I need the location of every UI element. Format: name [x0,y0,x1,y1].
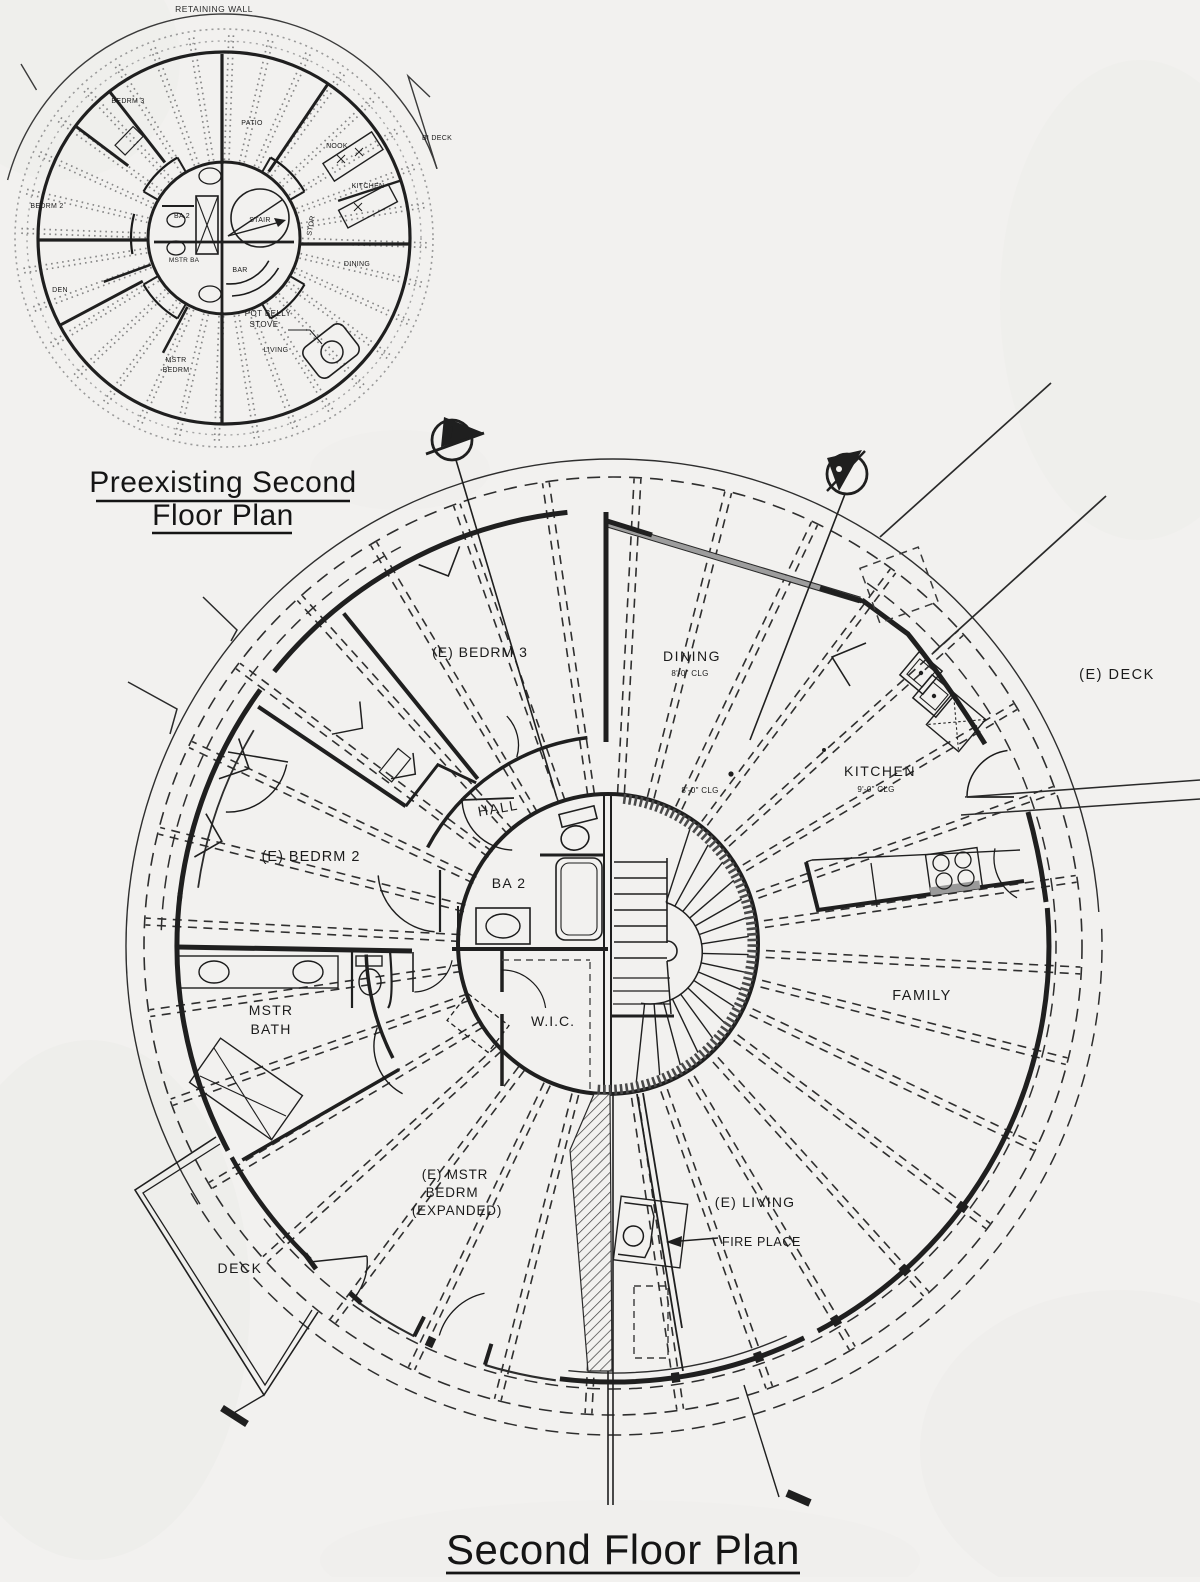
svg-text:PATIO: PATIO [241,120,263,127]
svg-text:FIRE PLACE: FIRE PLACE [722,1235,801,1249]
svg-text:(E) BEDRM 3: (E) BEDRM 3 [432,644,528,660]
svg-text:FAMILY: FAMILY [892,988,952,1004]
svg-text:9'-0" CLG: 9'-0" CLG [857,785,894,794]
svg-text:NOOK: NOOK [326,143,348,150]
svg-text:(E) DECK: (E) DECK [1079,667,1155,683]
svg-text:DINING: DINING [663,648,721,664]
svg-text:Second Floor Plan: Second Floor Plan [446,1526,800,1573]
svg-text:W.I.C.: W.I.C. [531,1013,575,1029]
svg-text:BEDRM 3: BEDRM 3 [111,98,144,105]
svg-text:MSTR BA: MSTR BA [169,257,200,264]
svg-text:POT BELLY: POT BELLY [245,309,292,318]
svg-text:KITCHEN: KITCHEN [352,183,385,190]
svg-text:STOVE: STOVE [250,320,279,329]
svg-text:LIVING: LIVING [264,347,289,354]
svg-text:RETAINING WALL: RETAINING WALL [175,4,253,14]
svg-text:MSTR: MSTR [249,1002,293,1018]
svg-text:8'-0" CLG: 8'-0" CLG [681,786,718,795]
svg-text:BA 2: BA 2 [492,875,526,891]
svg-text:8'-0" CLG: 8'-0" CLG [671,669,708,678]
svg-text:BATH: BATH [250,1021,291,1037]
svg-text:DINING: DINING [344,261,370,268]
svg-text:BAR: BAR [232,267,247,274]
svg-text:(E) BEDRM 2: (E) BEDRM 2 [262,849,361,865]
svg-text:(EXPANDED): (EXPANDED) [412,1203,502,1218]
svg-text:(E) MSTR: (E) MSTR [422,1167,488,1182]
svg-text:BEDRM: BEDRM [163,367,190,374]
svg-text:KITCHEN: KITCHEN [844,763,916,779]
svg-text:DEN: DEN [52,287,68,294]
svg-text:BA 2: BA 2 [174,213,190,220]
svg-text:MSTR: MSTR [165,357,186,364]
svg-text:BI DECK: BI DECK [422,135,452,142]
svg-text:Preexisting Second: Preexisting Second [89,466,357,499]
svg-text:BEDRM: BEDRM [426,1185,479,1200]
svg-text:Floor Plan: Floor Plan [152,499,294,532]
svg-text:DECK: DECK [218,1260,263,1276]
svg-text:STAIR: STAIR [249,217,271,224]
svg-text:BEDRM 2: BEDRM 2 [30,203,63,210]
svg-text:(E) LIVING: (E) LIVING [715,1194,795,1210]
